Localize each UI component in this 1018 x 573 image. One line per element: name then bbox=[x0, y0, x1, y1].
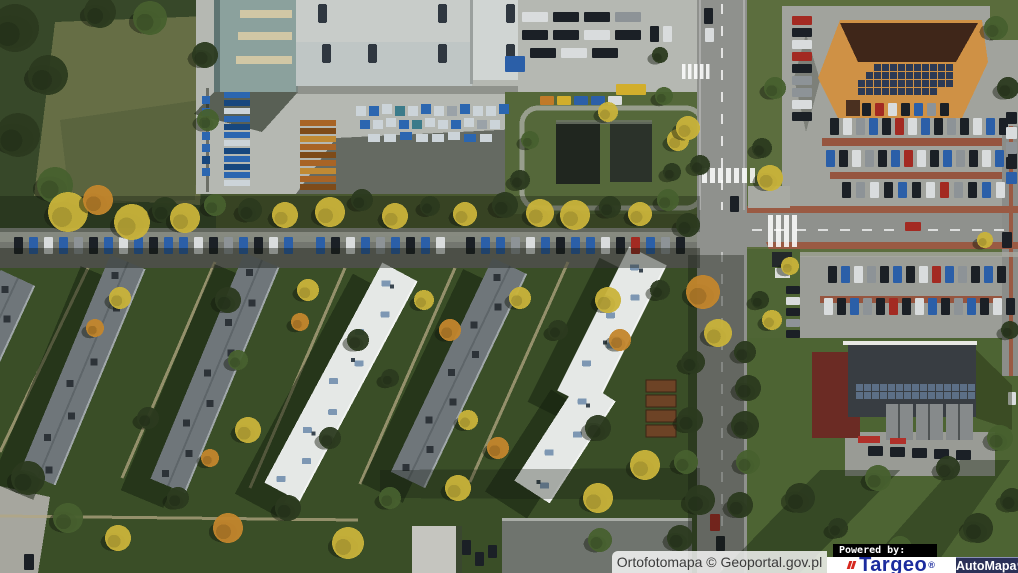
retail-roof-brown bbox=[840, 23, 978, 62]
shed bbox=[610, 122, 652, 182]
brand-logos: Targeo® AutoMapa® bbox=[827, 557, 1018, 573]
attribution-text: Ortofotomapa © Geoportal.gov.pl bbox=[617, 554, 822, 570]
automapa-logo[interactable]: AutoMapa® bbox=[956, 557, 1018, 573]
targeo-red-mark-icon bbox=[851, 561, 857, 569]
aerial-map-canvas[interactable] bbox=[0, 0, 1018, 573]
map-viewport[interactable]: Ortofotomapa © Geoportal.gov.pl Powered … bbox=[0, 0, 1018, 573]
targeo-logo[interactable]: Targeo® bbox=[827, 557, 956, 573]
map-attribution: Ortofotomapa © Geoportal.gov.pl bbox=[612, 551, 827, 573]
bottom-light-building bbox=[412, 526, 456, 573]
shed bbox=[556, 122, 600, 184]
